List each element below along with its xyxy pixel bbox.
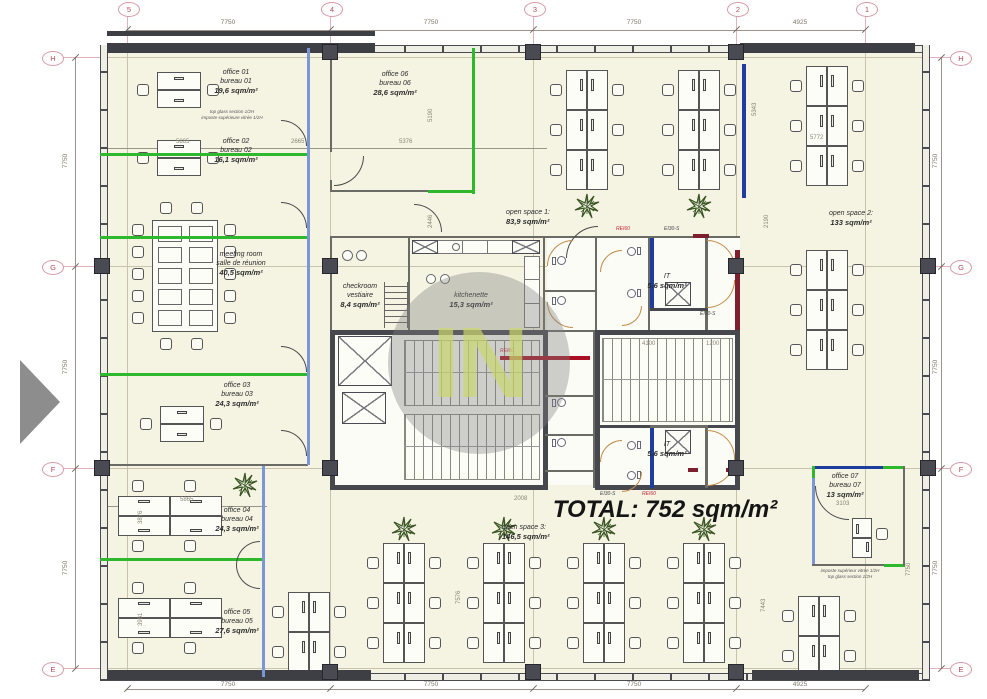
- chair: [132, 582, 144, 594]
- chair: [132, 246, 144, 258]
- dim-2190: 2190: [764, 215, 770, 228]
- chair: [191, 202, 203, 214]
- fixture-circle: [356, 250, 367, 261]
- grid-bubble-e-left: E: [42, 662, 64, 677]
- grid-bubble-3: 3: [524, 2, 546, 17]
- dim-right-3: 7750: [932, 538, 939, 598]
- monitor: [697, 632, 700, 644]
- div: bureau 07: [810, 481, 880, 490]
- monitor: [831, 339, 834, 351]
- toilet: [626, 288, 641, 298]
- monitor: [608, 552, 611, 564]
- glass-note-office07: imposte supérieur vitrée 1/2H top glass …: [804, 568, 896, 580]
- chair: [429, 557, 441, 569]
- dim-top-1: 7750: [198, 19, 258, 26]
- monitor: [408, 592, 411, 604]
- chair: [132, 312, 144, 324]
- structural-column: [525, 664, 541, 680]
- chair: [132, 540, 144, 552]
- monitor: [820, 75, 823, 87]
- dim-5190: 5190: [428, 109, 434, 122]
- monitor: [397, 632, 400, 644]
- stair-flight: [602, 338, 733, 422]
- wall-segment: [593, 332, 595, 488]
- chair: [790, 304, 802, 316]
- div: office 05: [206, 608, 268, 617]
- dim-bottom-4: 4925: [770, 681, 830, 688]
- desk: [383, 543, 404, 583]
- monitor: [703, 119, 706, 131]
- wall-segment: [262, 466, 265, 677]
- monitor: [823, 645, 826, 657]
- dim-line: [127, 689, 865, 690]
- div: bureau 05: [206, 617, 268, 626]
- desk: [566, 150, 587, 190]
- chair: [132, 290, 144, 302]
- chair: [272, 646, 284, 658]
- desk: [157, 72, 201, 90]
- chair: [367, 637, 379, 649]
- monitor: [408, 552, 411, 564]
- monitor: [313, 601, 316, 613]
- chair: [334, 606, 346, 618]
- div: bureau 03: [206, 390, 268, 399]
- desk: [160, 406, 204, 424]
- room-label-office07: office 07 bureau 07 13 sqm/m²: [810, 472, 880, 500]
- wall-segment: [884, 564, 905, 567]
- monitor: [497, 552, 500, 564]
- chair: [667, 637, 679, 649]
- wall-segment: [883, 466, 905, 469]
- dim-3961: 3961: [138, 613, 144, 626]
- desk: [118, 516, 170, 536]
- desk: [118, 496, 170, 516]
- area: 83,9 sqm/m²: [506, 217, 570, 227]
- monitor: [708, 552, 711, 564]
- wall-segment: [100, 153, 310, 156]
- dim-5343: 5343: [752, 103, 758, 116]
- chair: [224, 290, 236, 302]
- chair: [160, 202, 172, 214]
- chair: [467, 597, 479, 609]
- toilet: [626, 246, 641, 256]
- dim-5772: 5772: [810, 135, 823, 141]
- wall-segment: [100, 373, 310, 376]
- chair: [191, 338, 203, 350]
- desk: [583, 543, 604, 583]
- meeting-table-cell: [158, 268, 182, 284]
- watermark-logo: IN: [388, 272, 570, 454]
- dim-2008: 2008: [514, 496, 527, 502]
- chair: [224, 224, 236, 236]
- desk: [483, 543, 504, 583]
- dim-top-4: 4925: [770, 19, 830, 26]
- room-label-office03: office 03 bureau 03 24,3 sqm/m²: [206, 381, 268, 409]
- chair: [629, 557, 641, 569]
- [object: [574, 193, 600, 219]
- chair: [852, 160, 864, 172]
- grid-bubble-2: 2: [727, 2, 749, 17]
- grid-bubble-h-right: H: [950, 51, 972, 66]
- [object: [391, 516, 417, 542]
- chair: [132, 642, 144, 654]
- chair: [224, 312, 236, 324]
- div: open space 3:: [502, 523, 568, 532]
- div: meeting room: [210, 250, 272, 259]
- dim-5865-b: 5865: [180, 497, 193, 503]
- monitor: [831, 259, 834, 271]
- structural-column: [525, 44, 541, 60]
- grid-bubble-g-right: G: [950, 260, 972, 275]
- area: 8,4 sqm/m²: [330, 300, 390, 310]
- grid-stem: [64, 57, 100, 58]
- wall-segment: [903, 466, 905, 566]
- area: 28,6 sqm/m²: [362, 88, 428, 98]
- chair: [272, 606, 284, 618]
- monitor: [708, 592, 711, 604]
- wall-segment: [330, 485, 548, 490]
- toilet-tank: [552, 439, 556, 447]
- structural-column: [728, 460, 744, 476]
- desk: [483, 583, 504, 623]
- dim-3876: 3876: [138, 511, 144, 524]
- entrance-arrow-icon: [20, 360, 60, 444]
- div: top glass section 1/2H: [804, 574, 896, 580]
- [object: [232, 472, 258, 498]
- toilet-bowl: [627, 441, 636, 450]
- chair: [667, 597, 679, 609]
- structural-column: [94, 460, 110, 476]
- grid-bubble-5: 5: [118, 2, 140, 17]
- toilet-bowl: [627, 247, 636, 256]
- toilet-bowl: [627, 289, 636, 298]
- desk: [852, 518, 872, 538]
- dim-2446: 2446: [428, 215, 434, 228]
- area: 13 sqm/m²: [810, 490, 880, 500]
- room-label-open-space-2: open space 2: 133 sqm/m²: [818, 209, 884, 228]
- chair: [132, 268, 144, 280]
- div: office 02: [206, 137, 266, 146]
- area: 5,6 sqm/m²: [646, 281, 688, 291]
- dim-top-3: 7750: [604, 19, 664, 26]
- chair: [567, 557, 579, 569]
- monitor: [831, 155, 834, 167]
- chair: [550, 84, 562, 96]
- toilet: [552, 438, 567, 448]
- wall-segment: [307, 48, 310, 465]
- area: 146,5 sqm/m²: [502, 532, 568, 542]
- monitor: [497, 632, 500, 644]
- chair: [782, 610, 794, 622]
- monitor: [597, 592, 600, 604]
- monitor: [703, 159, 706, 171]
- wall-segment: [545, 290, 595, 292]
- monitor: [302, 641, 305, 653]
- chair: [612, 84, 624, 96]
- grid-line: [107, 57, 923, 58]
- chair: [140, 418, 152, 430]
- monitor: [313, 641, 316, 653]
- desk: [483, 623, 504, 663]
- desk: [806, 290, 827, 330]
- chair: [467, 637, 479, 649]
- dim-7750-inner: 7750: [906, 563, 912, 576]
- monitor: [692, 119, 695, 131]
- floor-plan: 5 4 3 2 1 H G F E H G F E 7750 7750 7750…: [0, 0, 987, 699]
- div: office 03: [206, 381, 268, 390]
- desk: [683, 583, 704, 623]
- wall-segment: [330, 48, 332, 152]
- grid-line: [127, 52, 128, 672]
- fire-label-rei60: REI60: [616, 226, 630, 232]
- div: IT: [646, 272, 688, 281]
- wall-segment: [107, 464, 308, 466]
- area: 5,6 sqm/m²: [646, 449, 688, 459]
- monitor: [697, 592, 700, 604]
- total-area-label: TOTAL: 752 sqm/m²: [540, 497, 790, 523]
- meeting-table-cell: [158, 247, 182, 263]
- room-label-meeting: meeting room salle de réunion 40,5 sqm/m…: [210, 250, 272, 278]
- chair: [876, 528, 888, 540]
- desk: [798, 596, 819, 636]
- grid-bubble-1: 1: [856, 2, 878, 17]
- wall-segment: [650, 425, 708, 428]
- div: open space 2:: [818, 209, 884, 218]
- wall-segment: [545, 470, 595, 472]
- chair: [429, 597, 441, 609]
- shaft-xbox: [338, 336, 392, 386]
- div: office 01: [206, 68, 266, 77]
- monitor: [580, 79, 583, 91]
- chair: [210, 418, 222, 430]
- wall-segment: [428, 190, 475, 193]
- div: bureau 01: [206, 77, 266, 86]
- desk: [852, 538, 872, 558]
- chair: [160, 338, 172, 350]
- monitor: [591, 119, 594, 131]
- monitor: [580, 159, 583, 171]
- monitor: [831, 299, 834, 311]
- shaft-xbox: [512, 240, 540, 254]
- chair: [334, 646, 346, 658]
- desk: [383, 583, 404, 623]
- [object: [686, 193, 712, 219]
- chair: [662, 124, 674, 136]
- dim-2665: 2665: [291, 139, 304, 145]
- desk: [806, 66, 827, 106]
- div: bureau 02: [206, 146, 266, 155]
- chair: [184, 480, 196, 492]
- chair: [844, 650, 856, 662]
- monitor: [591, 79, 594, 91]
- monitor: [580, 119, 583, 131]
- facade-bar: [752, 670, 919, 680]
- shaft-xbox: [342, 392, 386, 424]
- chair: [429, 637, 441, 649]
- desk: [583, 623, 604, 663]
- monitor: [831, 75, 834, 87]
- dim-5865: 5865: [176, 139, 189, 145]
- wall-segment: [595, 330, 740, 335]
- dim-1200: 1200: [706, 341, 719, 347]
- chair: [729, 637, 741, 649]
- monitor: [138, 529, 150, 532]
- room-label-office05: office 05 bureau 05 27,6 sqm/m²: [206, 608, 268, 636]
- monitor: [177, 411, 187, 414]
- structural-column: [728, 258, 744, 274]
- chair: [529, 597, 541, 609]
- monitor: [508, 592, 511, 604]
- toilet-bowl: [557, 438, 566, 447]
- grid-bubble-4: 4: [321, 2, 343, 17]
- plant-icon: [574, 193, 600, 219]
- monitor: [820, 155, 823, 167]
- chair: [852, 120, 864, 132]
- wall-segment: [742, 64, 746, 198]
- wall-segment: [688, 468, 698, 472]
- chair: [729, 597, 741, 609]
- chair: [844, 610, 856, 622]
- room-label-office02: office 02 bureau 02 16,1 sqm/m²: [206, 137, 266, 165]
- desk: [288, 592, 309, 632]
- chair: [852, 264, 864, 276]
- monitor: [138, 602, 150, 605]
- chair: [550, 124, 562, 136]
- chair: [629, 637, 641, 649]
- room-label-office01: office 01 bureau 01 19,6 sqm/m²: [206, 68, 266, 96]
- monitor: [823, 605, 826, 617]
- plant-icon: [391, 516, 417, 542]
- chair: [137, 84, 149, 96]
- chair: [790, 160, 802, 172]
- sink-circle: [452, 243, 460, 251]
- facade-bar: [740, 43, 915, 53]
- chair: [612, 124, 624, 136]
- monitor: [697, 552, 700, 564]
- monitor: [831, 115, 834, 127]
- grid-bubble-h-left: H: [42, 51, 64, 66]
- grid-bubble-f-left: F: [42, 462, 64, 477]
- dim-3103: 3103: [836, 501, 849, 507]
- structural-column: [728, 44, 744, 60]
- room-label-it1: IT 5,6 sqm/m²: [646, 272, 688, 291]
- area: 40,5 sqm/m²: [210, 268, 272, 278]
- wall-segment: [812, 466, 883, 469]
- chair: [132, 480, 144, 492]
- wall-segment: [812, 564, 884, 566]
- monitor: [397, 552, 400, 564]
- monitor: [190, 602, 202, 605]
- monitor: [812, 645, 815, 657]
- dim-left-3: 7750: [62, 538, 69, 598]
- floor-plan-sheet: 5 4 3 2 1 H G F E H G F E 7750 7750 7750…: [0, 0, 987, 699]
- area: 24,3 sqm/m²: [206, 399, 268, 409]
- chair: [184, 582, 196, 594]
- wall-segment: [545, 434, 595, 436]
- desk: [118, 618, 170, 638]
- glass-note-office01: top glass section 1/2H imposte supérieur…: [186, 109, 278, 121]
- desk: [683, 543, 704, 583]
- monitor: [597, 632, 600, 644]
- dim-tick: [862, 685, 869, 692]
- dim-5376: 5376: [399, 139, 412, 145]
- desk: [806, 330, 827, 370]
- desk: [806, 250, 827, 290]
- area: 133 sqm/m²: [818, 218, 884, 228]
- chair: [790, 264, 802, 276]
- grid-bubble-f-right: F: [950, 462, 972, 477]
- chair: [529, 637, 541, 649]
- monitor: [508, 552, 511, 564]
- monitor: [174, 99, 184, 102]
- meeting-table-cell: [158, 289, 182, 305]
- desk: [566, 110, 587, 150]
- monitor: [608, 592, 611, 604]
- meeting-table-cell: [189, 226, 213, 242]
- div: office 04: [206, 506, 268, 515]
- wall-segment: [472, 48, 475, 194]
- monitor: [703, 79, 706, 91]
- monitor: [302, 601, 305, 613]
- area: 24,3 sqm/m²: [206, 524, 268, 534]
- monitor: [408, 632, 411, 644]
- grid-stem: [64, 668, 100, 669]
- chair: [467, 557, 479, 569]
- dim-right-1: 7750: [932, 131, 939, 191]
- chair: [529, 557, 541, 569]
- area: 19,6 sqm/m²: [206, 86, 266, 96]
- structural-column: [920, 460, 936, 476]
- fire-label-ei30: EI30-S: [664, 226, 679, 232]
- dim-7443: 7443: [761, 599, 767, 612]
- structural-column: [728, 664, 744, 680]
- room-label-open-space-3: open space 3: 146,5 sqm/m²: [502, 523, 568, 542]
- chair: [724, 124, 736, 136]
- wall-segment: [693, 234, 709, 238]
- dim-bottom-3: 7750: [604, 681, 664, 688]
- room-label-open-space-1: open space 1: 83,9 sqm/m²: [506, 208, 570, 227]
- chair: [729, 557, 741, 569]
- wall-segment: [595, 485, 740, 490]
- desk: [806, 146, 827, 186]
- div: office 06: [362, 70, 428, 79]
- monitor: [397, 592, 400, 604]
- monitor: [174, 167, 184, 170]
- chair: [724, 164, 736, 176]
- monitor: [138, 500, 150, 503]
- wall-segment: [330, 236, 545, 238]
- div: office 07: [810, 472, 880, 481]
- chair: [550, 164, 562, 176]
- monitor: [708, 632, 711, 644]
- plant-icon: [686, 193, 712, 219]
- dim-bottom-2: 7750: [401, 681, 461, 688]
- chair: [782, 650, 794, 662]
- monitor: [608, 632, 611, 644]
- toilet-tank: [637, 247, 641, 255]
- room-label-office04: office 04 bureau 04 24,3 sqm/m²: [206, 506, 268, 534]
- monitor: [856, 524, 859, 534]
- area: 27,6 sqm/m²: [206, 626, 268, 636]
- chair: [184, 642, 196, 654]
- fixture-circle: [342, 250, 353, 261]
- desk: [566, 70, 587, 110]
- structural-column: [322, 258, 338, 274]
- monitor: [866, 542, 869, 552]
- chair: [662, 84, 674, 96]
- meeting-table-cell: [189, 310, 213, 326]
- monitor: [820, 115, 823, 127]
